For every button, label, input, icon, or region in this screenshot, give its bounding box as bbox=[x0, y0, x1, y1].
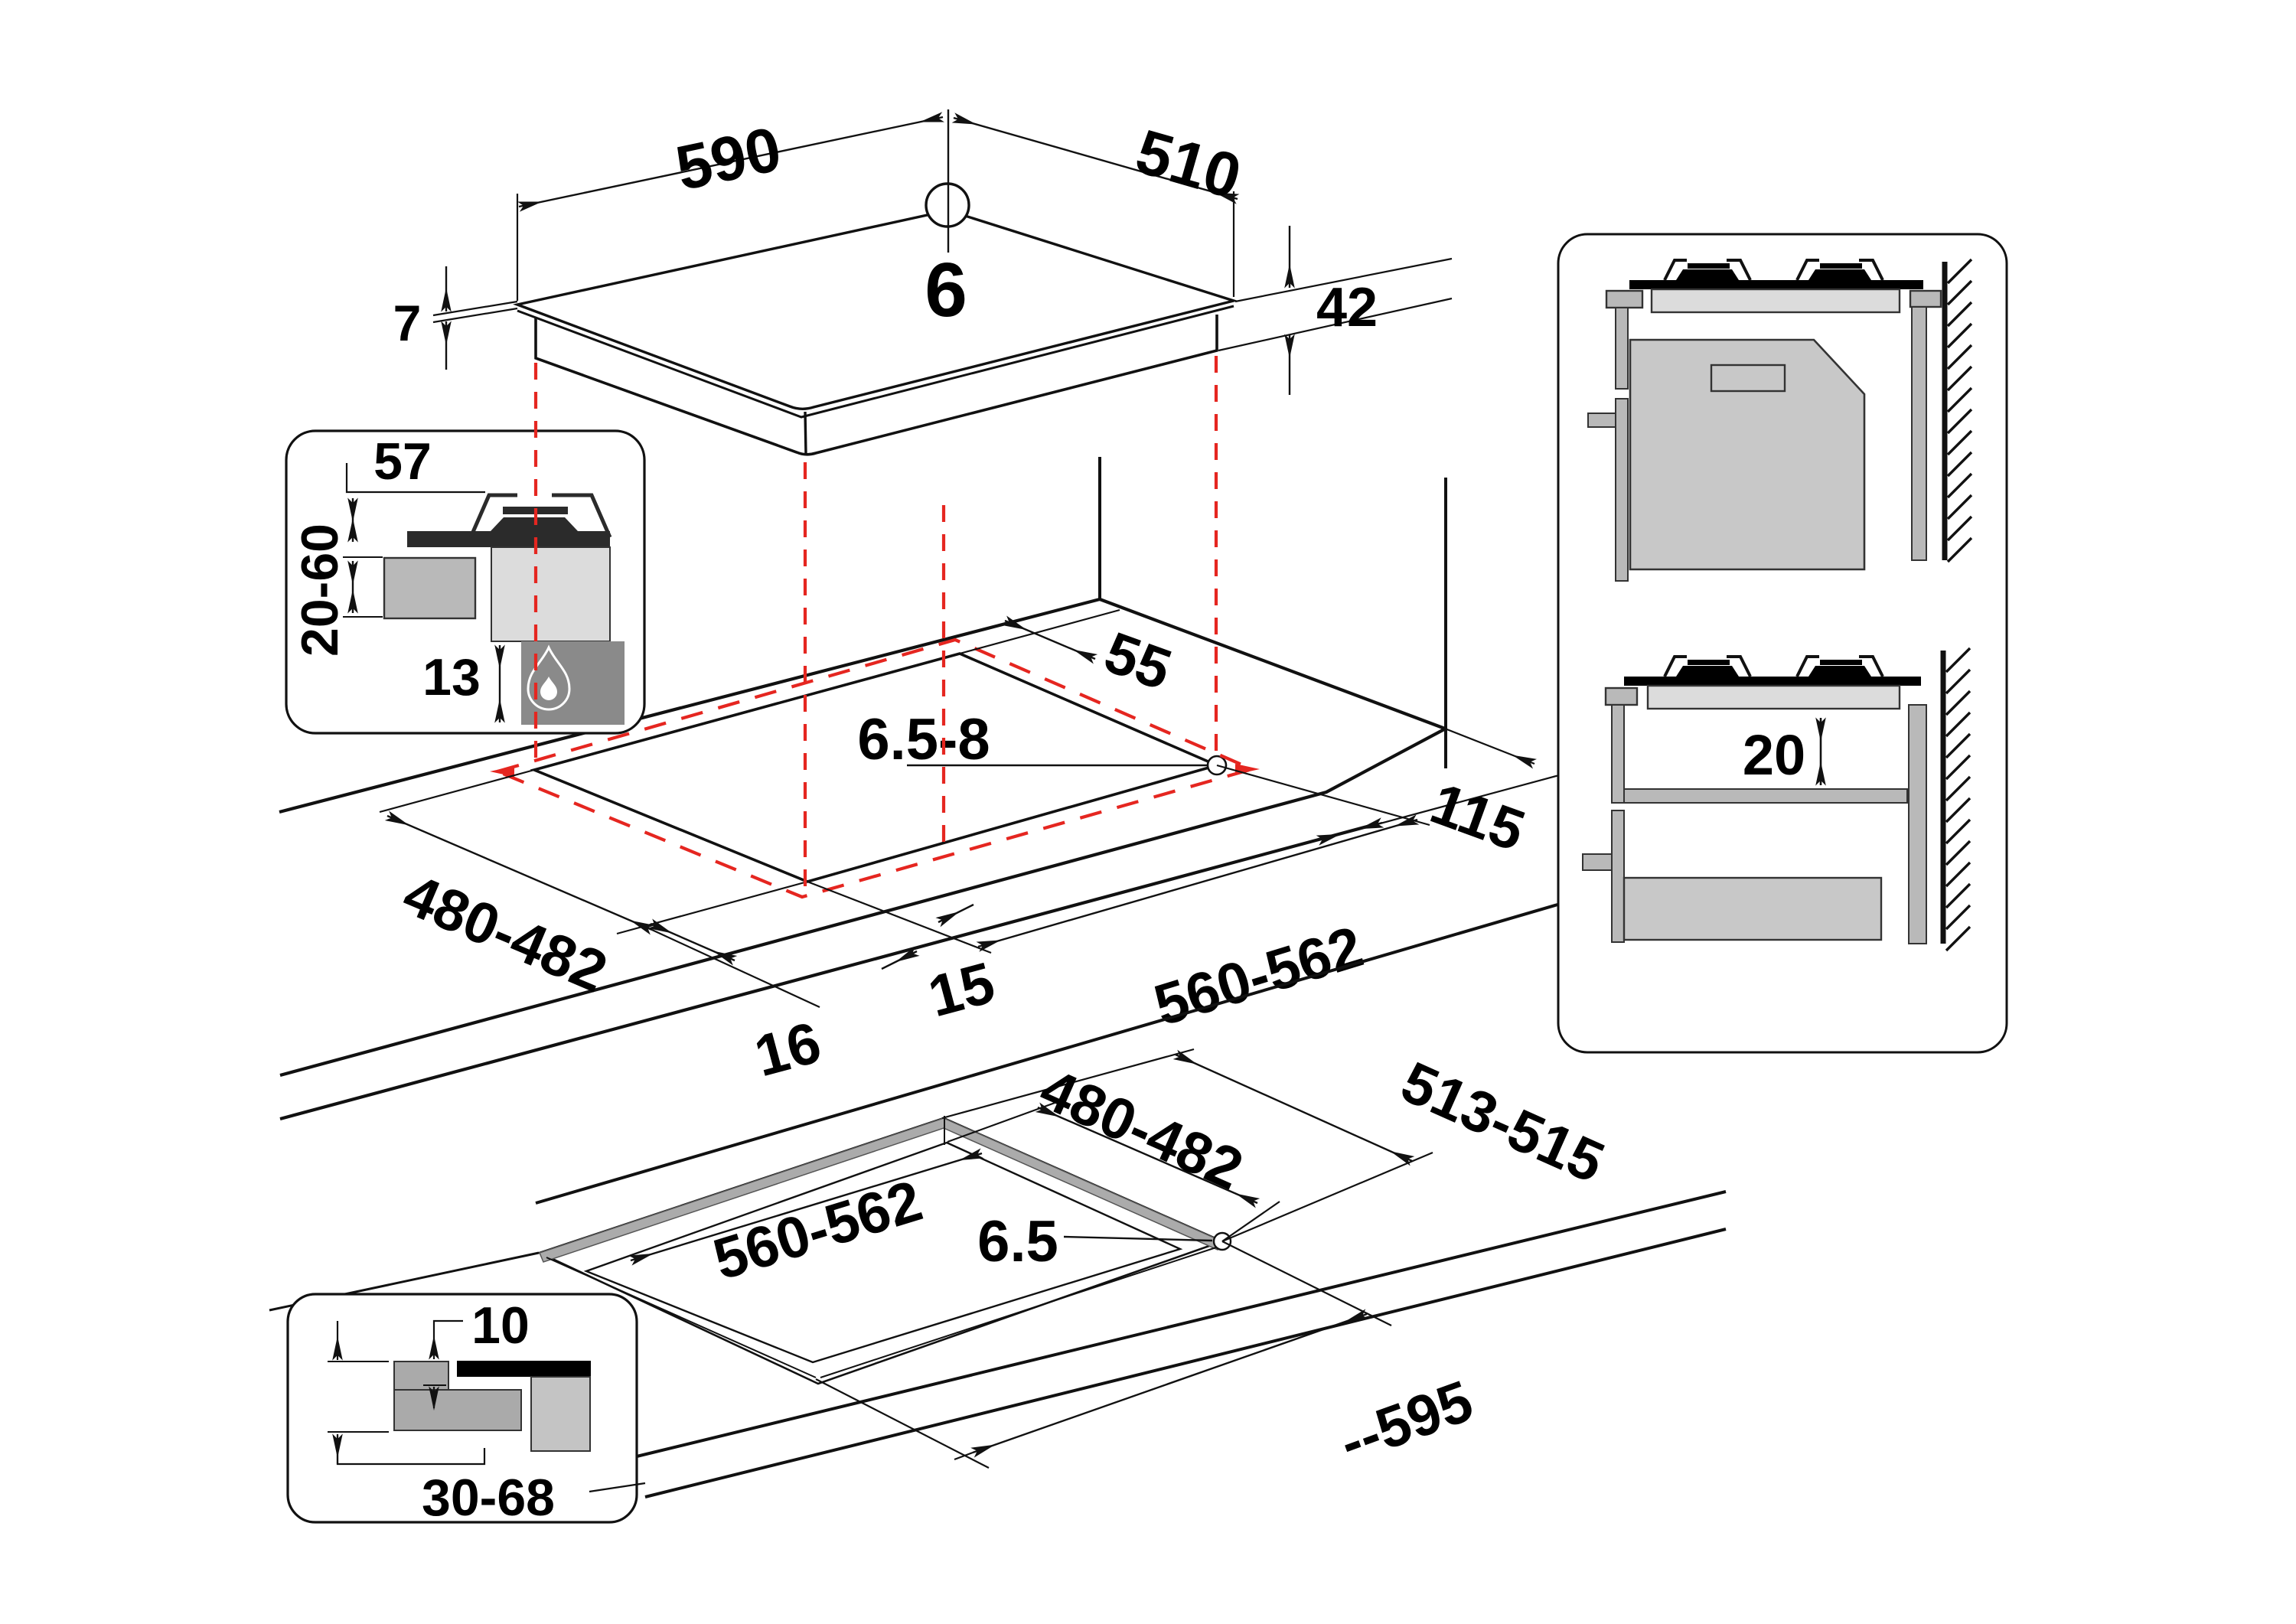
svg-text:10: 10 bbox=[471, 1296, 530, 1355]
svg-text:6.5-8: 6.5-8 bbox=[857, 707, 990, 772]
svg-text:42: 42 bbox=[1316, 277, 1378, 338]
svg-text:13: 13 bbox=[422, 648, 481, 706]
svg-text:20-60: 20-60 bbox=[291, 523, 349, 657]
svg-text:20: 20 bbox=[1743, 723, 1805, 787]
svg-text:57: 57 bbox=[373, 432, 432, 491]
svg-text:30-68: 30-68 bbox=[422, 1469, 555, 1527]
svg-text:6.5: 6.5 bbox=[977, 1209, 1058, 1274]
svg-text:7: 7 bbox=[393, 295, 422, 351]
svg-text:6: 6 bbox=[925, 247, 967, 333]
